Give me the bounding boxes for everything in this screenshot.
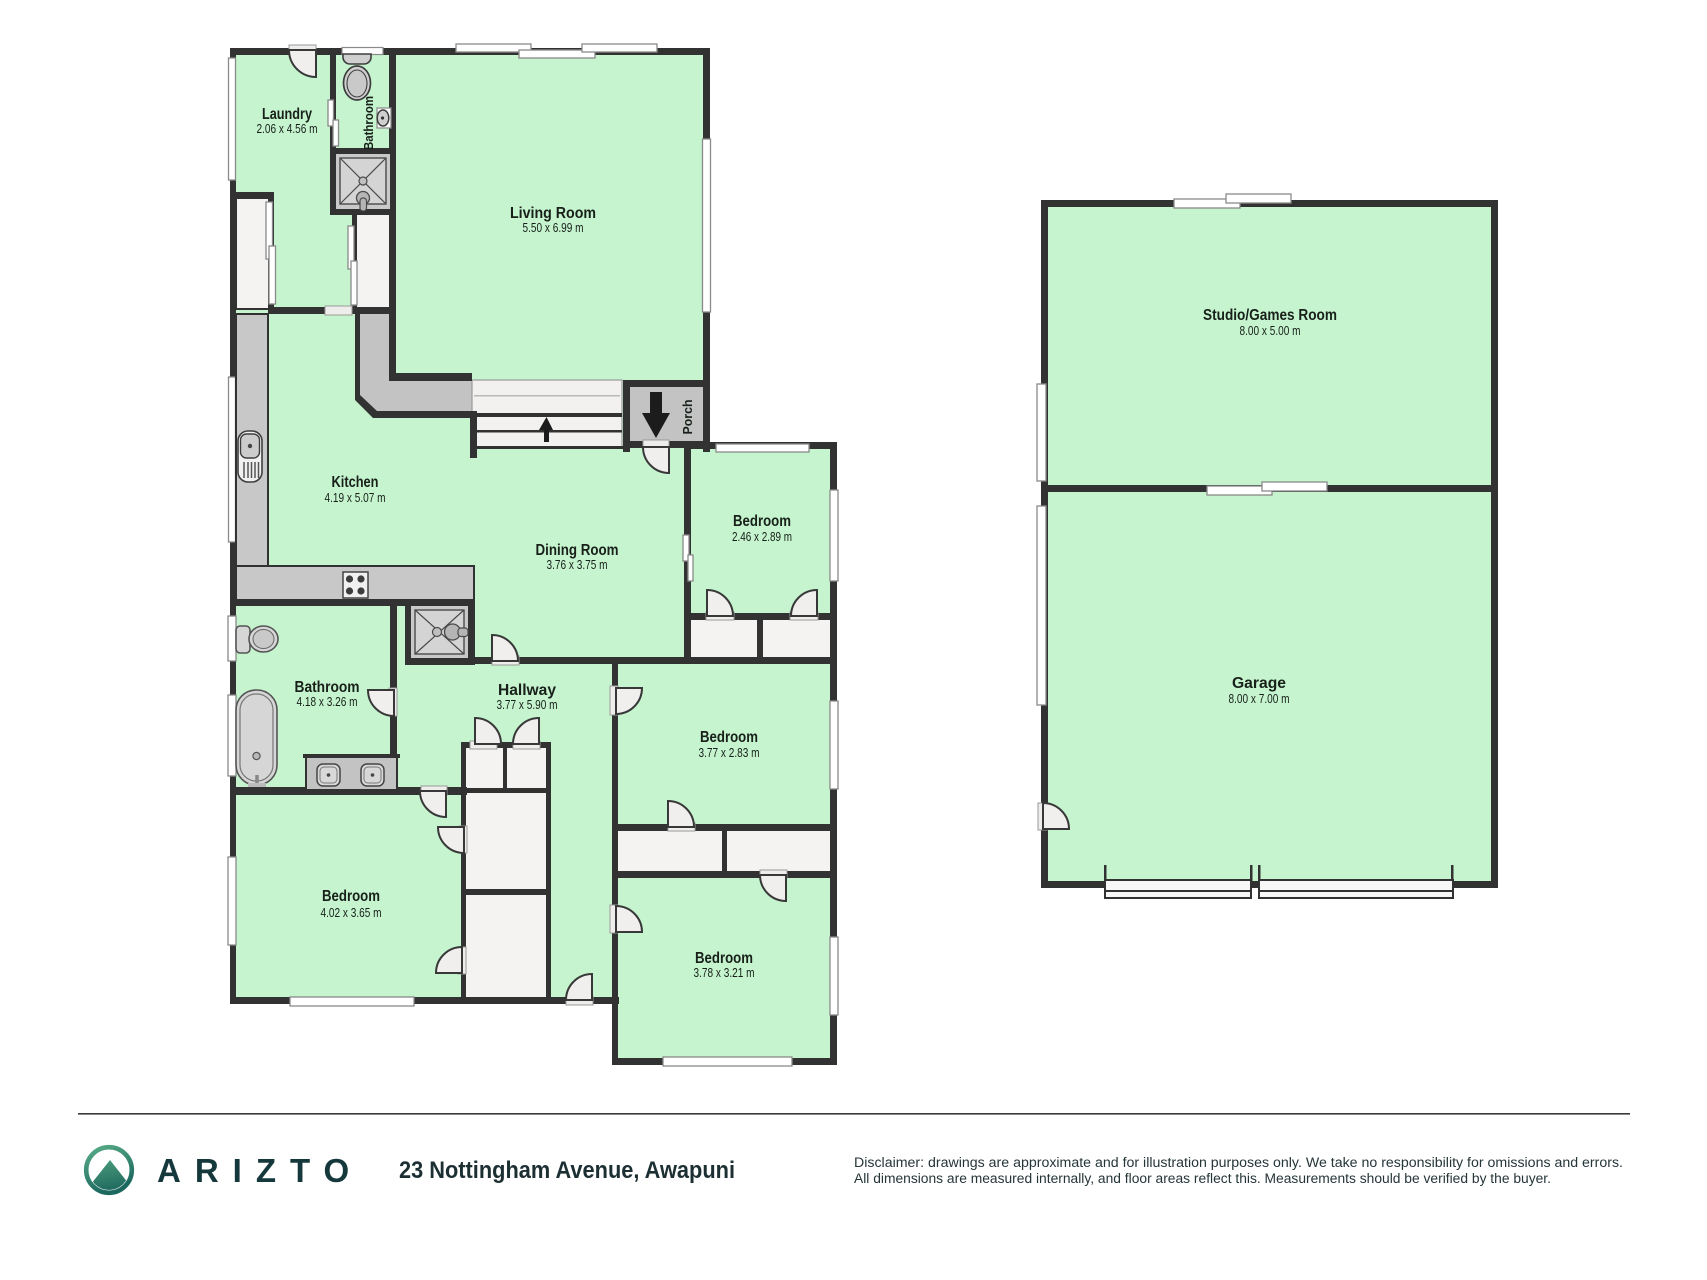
svg-text:Garage: Garage bbox=[1232, 675, 1286, 692]
svg-text:All dimensions are measured in: All dimensions are measured internally, … bbox=[854, 1171, 1551, 1186]
svg-text:Bedroom: Bedroom bbox=[733, 513, 791, 530]
svg-text:4.18 x 3.26 m: 4.18 x 3.26 m bbox=[297, 694, 358, 709]
svg-text:Disclaimer: drawings are appro: Disclaimer: drawings are approximate and… bbox=[854, 1155, 1623, 1170]
svg-text:8.00 x 7.00 m: 8.00 x 7.00 m bbox=[1229, 691, 1290, 706]
svg-text:4.19 x 5.07 m: 4.19 x 5.07 m bbox=[325, 490, 386, 505]
svg-text:3.78 x 3.21 m: 3.78 x 3.21 m bbox=[694, 965, 755, 980]
svg-text:Porch: Porch bbox=[680, 399, 695, 434]
svg-text:3.76 x 3.75 m: 3.76 x 3.75 m bbox=[547, 557, 608, 572]
svg-text:Bathroom: Bathroom bbox=[361, 96, 376, 150]
svg-text:23 Nottingham Avenue, Awapuni: 23 Nottingham Avenue, Awapuni bbox=[399, 1157, 735, 1184]
svg-text:Bedroom: Bedroom bbox=[700, 729, 758, 746]
svg-text:Studio/Games Room: Studio/Games Room bbox=[1203, 307, 1337, 324]
svg-text:Bedroom: Bedroom bbox=[322, 888, 380, 905]
svg-text:ARIZTO: ARIZTO bbox=[157, 1152, 363, 1189]
svg-text:3.77 x 5.90 m: 3.77 x 5.90 m bbox=[497, 697, 558, 712]
svg-text:2.06 x 4.56 m: 2.06 x 4.56 m bbox=[257, 121, 318, 136]
svg-text:Kitchen: Kitchen bbox=[332, 474, 379, 491]
svg-text:2.46 x 2.89 m: 2.46 x 2.89 m bbox=[732, 529, 792, 544]
svg-text:5.50 x 6.99 m: 5.50 x 6.99 m bbox=[523, 220, 584, 235]
svg-text:3.77 x 2.83 m: 3.77 x 2.83 m bbox=[699, 745, 760, 760]
svg-text:4.02 x 3.65 m: 4.02 x 3.65 m bbox=[321, 905, 382, 920]
svg-text:8.00 x 5.00 m: 8.00 x 5.00 m bbox=[1240, 323, 1301, 338]
